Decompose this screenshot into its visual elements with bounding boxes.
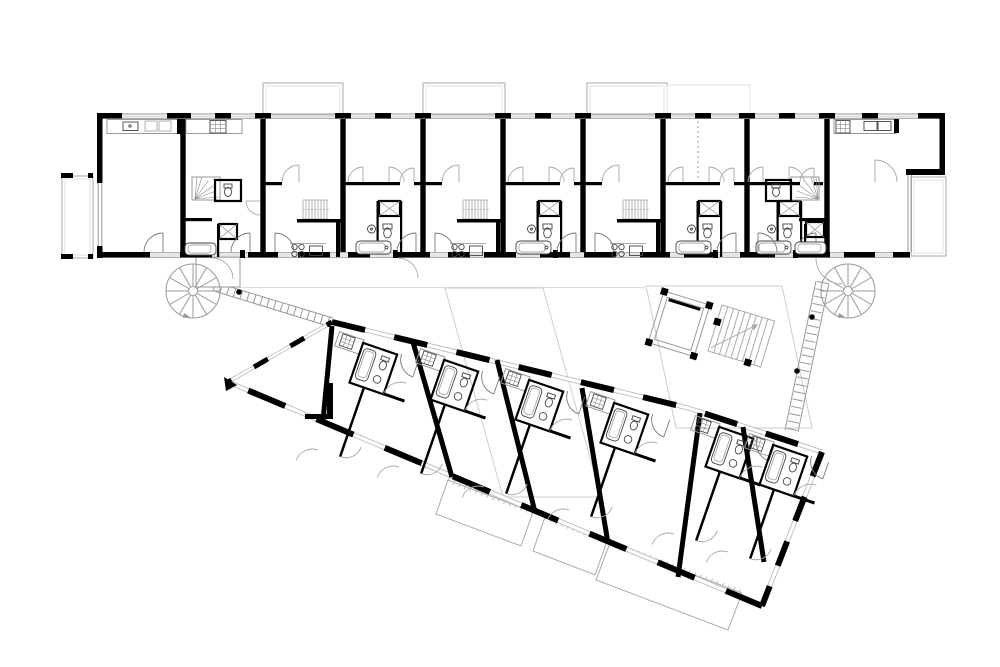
floor-plan-canvas: Residential floor plan - two apartment w… [0, 0, 1000, 667]
upper-wing [61, 83, 946, 259]
balcony [423, 83, 505, 115]
walkway-left [214, 282, 333, 327]
walkway-right [785, 281, 829, 432]
unit-walls [180, 119, 829, 252]
column-dot [809, 314, 815, 320]
upper-unit-module-stair [583, 165, 663, 257]
column-dot [236, 289, 242, 295]
lower-unit-module [461, 369, 585, 525]
south-terraces [436, 480, 742, 630]
north-balconies [263, 83, 750, 115]
upper-unit-module-bath [503, 167, 583, 258]
west-tip-railing [224, 322, 332, 391]
wc-room [215, 180, 241, 201]
spiral-stair-left [166, 264, 220, 318]
lower-east-facade [762, 452, 822, 606]
spiral-landing-left [196, 257, 240, 287]
balcony [263, 83, 343, 115]
balcony [587, 83, 667, 115]
unit-east-kitchen [834, 119, 899, 182]
upper-unit-module-stair [423, 165, 503, 257]
column-dot [794, 368, 800, 374]
lower-unit-module [376, 349, 500, 505]
unit-west-kitchen [107, 119, 183, 252]
spiral-stair-right [821, 264, 875, 318]
balcony-faint [667, 85, 750, 115]
unit-entry-west [183, 120, 260, 259]
east-end [900, 113, 946, 258]
lower-wing [224, 322, 829, 630]
upper-unit-module-bath [663, 167, 743, 258]
elevator [644, 287, 713, 360]
west-end-wall [97, 113, 103, 258]
roof-terrace [911, 177, 946, 256]
gallery-door-arc [398, 258, 418, 278]
upper-unit-module-stair [263, 165, 343, 257]
lower-unit-module [295, 332, 419, 488]
floor-plan-page: Residential floor plan - two apartment w… [0, 0, 1000, 667]
west-balcony [61, 173, 93, 259]
gallery-door-arc [816, 258, 842, 284]
upper-unit-module-bath [343, 167, 423, 258]
core-stair [704, 304, 774, 370]
